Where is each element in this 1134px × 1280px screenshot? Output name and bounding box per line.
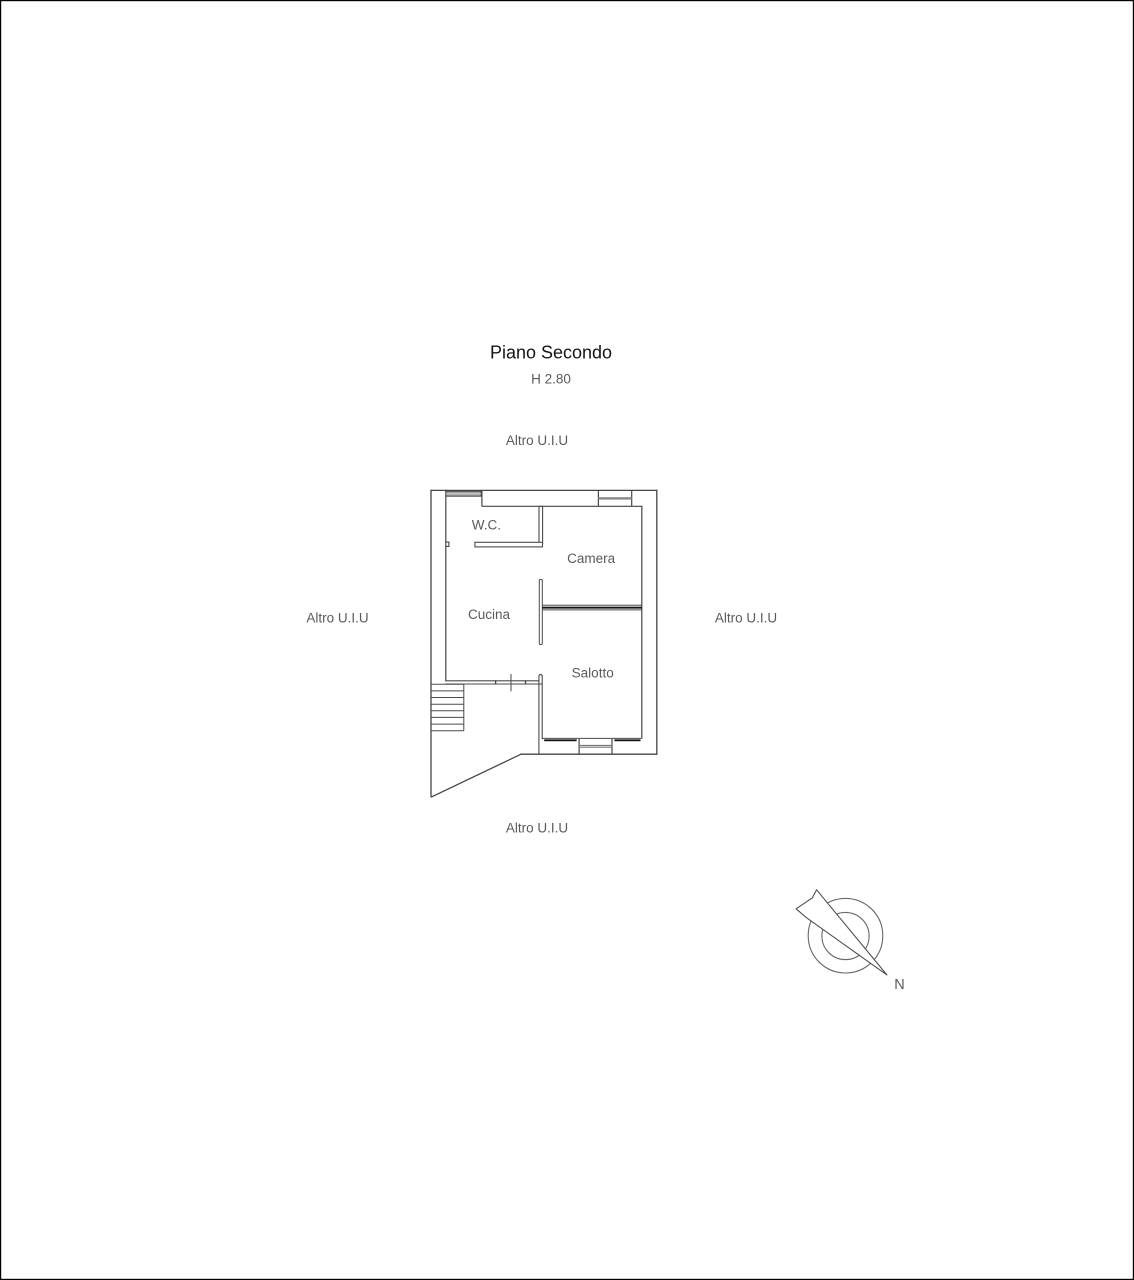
svg-text:Altro U.I.U: Altro U.I.U [306,610,368,625]
svg-text:Camera: Camera [567,551,616,566]
svg-text:W.C.: W.C. [472,518,501,533]
svg-text:H 2.80: H 2.80 [531,372,571,387]
svg-text:Piano Secondo: Piano Secondo [490,342,612,362]
svg-text:Cucina: Cucina [468,607,511,622]
svg-text:Altro U.I.U: Altro U.I.U [506,821,568,836]
svg-text:N: N [894,977,904,993]
svg-text:Salotto: Salotto [572,666,614,681]
svg-text:Altro U.I.U: Altro U.I.U [506,433,568,448]
svg-text:Altro U.I.U: Altro U.I.U [715,610,777,625]
